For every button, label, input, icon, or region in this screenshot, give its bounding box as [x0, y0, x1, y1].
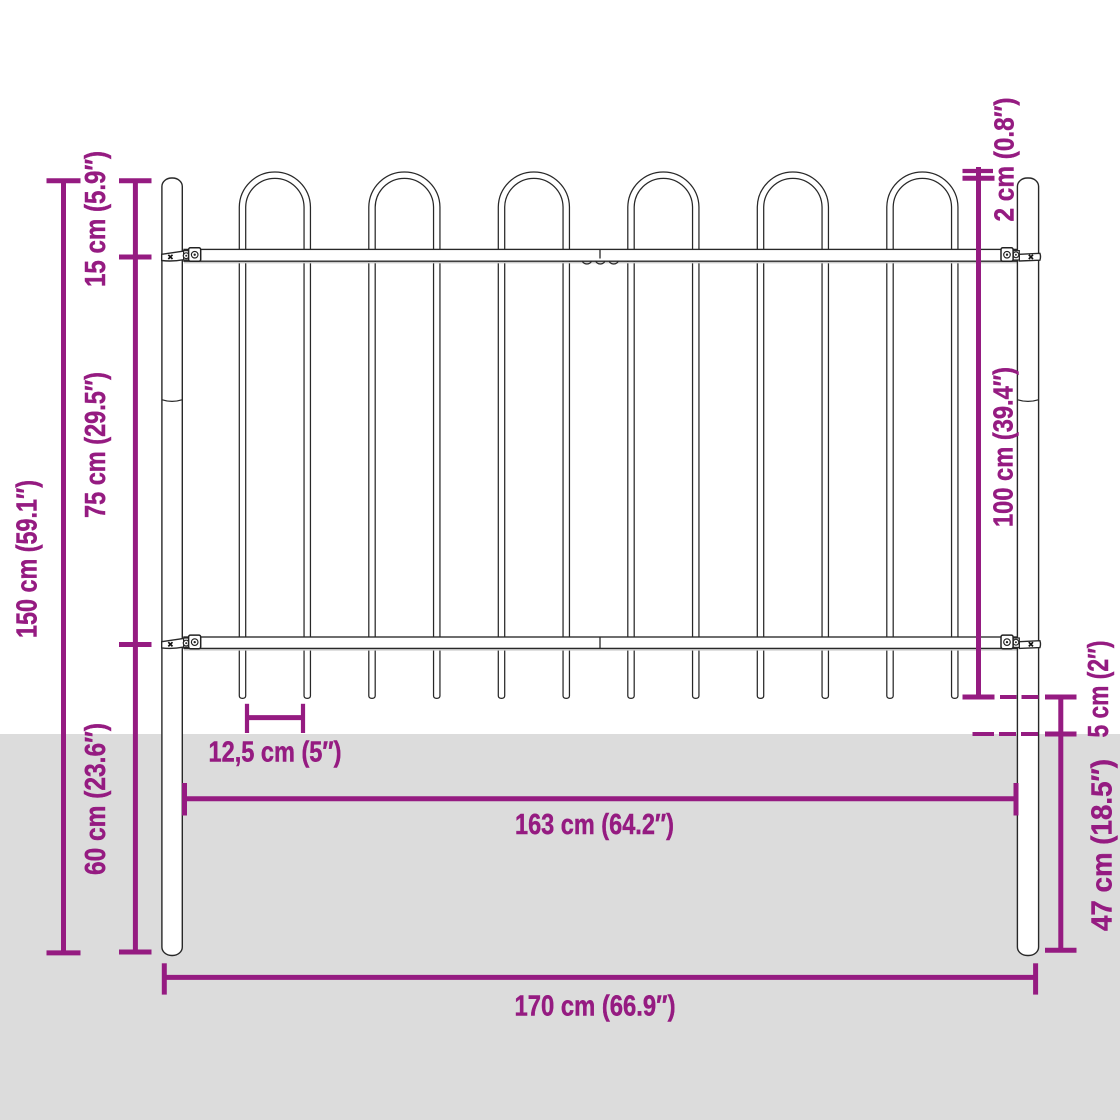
- svg-text:75 cm (29.5″): 75 cm (29.5″): [80, 372, 112, 518]
- svg-text:12,5 cm (5″): 12,5 cm (5″): [209, 737, 342, 769]
- svg-text:100 cm (39.4″): 100 cm (39.4″): [988, 367, 1019, 527]
- svg-text:15 cm (5.9″): 15 cm (5.9″): [80, 151, 112, 287]
- svg-text:2 cm (0.8″): 2 cm (0.8″): [989, 98, 1020, 222]
- svg-text:150 cm (59.1″): 150 cm (59.1″): [12, 480, 44, 638]
- svg-text:163 cm (64.2″): 163 cm (64.2″): [515, 809, 674, 841]
- svg-text:47 cm (18.5″): 47 cm (18.5″): [1087, 759, 1119, 931]
- svg-text:170 cm (66.9″): 170 cm (66.9″): [515, 991, 676, 1023]
- svg-text:5 cm (2″): 5 cm (2″): [1083, 641, 1115, 738]
- svg-text:60 cm (23.6″): 60 cm (23.6″): [80, 723, 112, 875]
